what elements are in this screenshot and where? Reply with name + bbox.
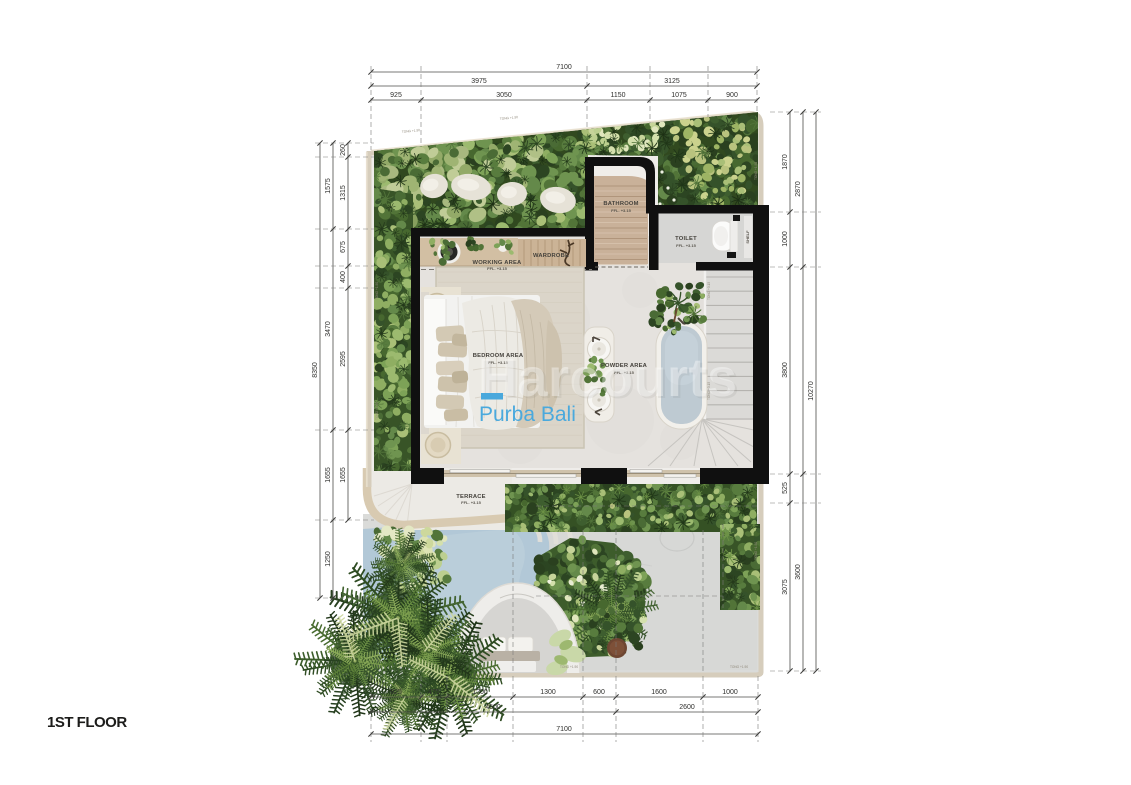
svg-text:TONG +1.90: TONG +1.90 [375, 402, 379, 420]
svg-text:10270: 10270 [808, 381, 815, 401]
svg-text:2600: 2600 [679, 704, 695, 711]
svg-text:TONG +1.90: TONG +1.90 [754, 542, 758, 560]
svg-text:1600: 1600 [651, 689, 667, 696]
svg-text:3050: 3050 [496, 92, 512, 99]
svg-text:TONG +1.90: TONG +1.90 [730, 665, 748, 669]
svg-text:FFL. +3.15: FFL. +3.15 [676, 243, 696, 248]
svg-text:1075: 1075 [671, 92, 687, 99]
svg-text:1655: 1655 [325, 467, 332, 483]
svg-text:1655: 1655 [340, 467, 347, 483]
svg-text:1575: 1575 [325, 178, 332, 194]
svg-text:TONG +1.90: TONG +1.90 [375, 282, 379, 300]
svg-text:FFL. +3.15: FFL. +3.15 [487, 266, 507, 271]
svg-text:7100: 7100 [556, 726, 572, 733]
svg-text:TONG +3.15: TONG +3.15 [707, 282, 711, 300]
svg-text:3975: 3975 [471, 78, 487, 85]
svg-text:FFL. +3.15: FFL. +3.15 [461, 500, 481, 505]
svg-text:7100: 7100 [556, 64, 572, 71]
svg-text:BATHROOM: BATHROOM [603, 201, 638, 207]
svg-text:3125: 3125 [664, 78, 680, 85]
svg-text:1870: 1870 [782, 154, 789, 170]
svg-text:3470: 3470 [325, 321, 332, 337]
svg-text:8350: 8350 [312, 362, 319, 378]
svg-text:3600: 3600 [795, 564, 802, 580]
svg-text:FFL. +3.15: FFL. +3.15 [611, 208, 631, 213]
svg-text:925: 925 [390, 689, 402, 696]
svg-text:TONG +1.90: TONG +1.90 [754, 162, 758, 180]
svg-text:900: 900 [726, 92, 738, 99]
svg-text:475: 475 [428, 689, 440, 696]
svg-text:1000: 1000 [722, 689, 738, 696]
svg-text:1ST FLOOR: 1ST FLOOR [47, 714, 127, 731]
svg-text:1250: 1250 [325, 551, 332, 567]
svg-text:1150: 1150 [610, 92, 625, 99]
svg-text:525: 525 [782, 482, 789, 494]
svg-text:1200: 1200 [472, 689, 488, 696]
svg-text:Harcourts: Harcourts [478, 348, 738, 408]
svg-text:3075: 3075 [782, 579, 789, 595]
svg-text:WARDROBE: WARDROBE [533, 253, 569, 259]
svg-text:1000: 1000 [782, 231, 789, 247]
svg-text:2595: 2595 [340, 351, 347, 367]
svg-text:SHELF: SHELF [745, 230, 750, 244]
svg-text:1300: 1300 [540, 689, 556, 696]
svg-text:TOILET: TOILET [675, 236, 697, 242]
svg-text:Purba Bali: Purba Bali [479, 403, 576, 426]
svg-text:1315: 1315 [340, 185, 347, 201]
svg-text:TONG +1.90: TONG +1.90 [560, 665, 578, 669]
svg-text:2870: 2870 [795, 181, 802, 197]
svg-text:675: 675 [340, 241, 347, 253]
svg-text:3800: 3800 [782, 362, 789, 378]
svg-text:400: 400 [340, 271, 347, 283]
svg-text:4500: 4500 [485, 704, 501, 711]
svg-text:600: 600 [593, 689, 605, 696]
svg-text:925: 925 [390, 92, 402, 99]
svg-text:260: 260 [340, 144, 347, 156]
